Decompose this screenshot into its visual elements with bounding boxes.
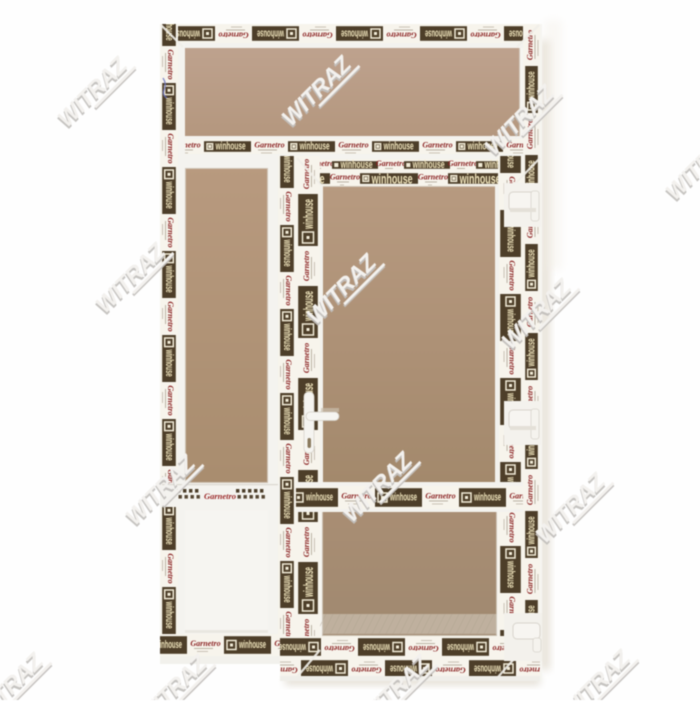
svg-text:Garnetro: Garnetro — [338, 141, 368, 150]
svg-text:Garnetro: Garnetro — [254, 141, 284, 150]
svg-text:winhouse: winhouse — [505, 560, 517, 588]
svg-text:winhouse: winhouse — [412, 159, 445, 171]
svg-text:Garnetro: Garnetro — [218, 31, 248, 40]
svg-text:winhouse: winhouse — [371, 171, 413, 187]
svg-text:winhouse: winhouse — [447, 641, 475, 653]
svg-text:Garnetro: Garnetro — [284, 191, 293, 221]
svg-text:winhouse: winhouse — [281, 575, 293, 603]
svg-text:Garnetro: Garnetro — [302, 527, 311, 557]
svg-text:Garnetro: Garnetro — [284, 527, 293, 557]
svg-text:winhouse: winhouse — [425, 28, 453, 40]
svg-text:Garnetro: Garnetro — [204, 491, 236, 501]
svg-text:Garnetro: Garnetro — [508, 260, 517, 290]
svg-text:winhouse: winhouse — [300, 567, 316, 598]
svg-text:Garnetro: Garnetro — [166, 217, 175, 247]
svg-text:Garnetro: Garnetro — [422, 141, 452, 150]
svg-text:winhouse: winhouse — [363, 641, 391, 653]
svg-text:winhouse: winhouse — [163, 517, 175, 545]
svg-text:Garnetro: Garnetro — [330, 173, 360, 182]
svg-text:Garnetro: Garnetro — [302, 343, 311, 373]
svg-text:Garnetro: Garnetro — [284, 359, 293, 389]
svg-text:Garnetro: Garnetro — [302, 31, 332, 40]
svg-text:winhouse: winhouse — [163, 349, 175, 377]
svg-text:winhouse: winhouse — [341, 28, 369, 40]
svg-text:Garnetro: Garnetro — [470, 31, 500, 40]
svg-text:winhouse: winhouse — [305, 492, 333, 504]
svg-text:Garnetro: Garnetro — [302, 159, 311, 189]
svg-text:Garnetro: Garnetro — [166, 385, 175, 415]
svg-text:Garnetro: Garnetro — [425, 492, 455, 501]
svg-text:Garnetro: Garnetro — [386, 31, 416, 40]
svg-text:Garnetro: Garnetro — [376, 159, 406, 168]
svg-text:winhouse: winhouse — [163, 97, 175, 125]
svg-text:winhouse: winhouse — [526, 249, 538, 278]
svg-text:Garnetro: Garnetro — [302, 251, 311, 281]
svg-text:winhouse: winhouse — [215, 141, 246, 153]
svg-text:Garnetro: Garnetro — [508, 512, 517, 542]
svg-text:winhouse: winhouse — [383, 141, 414, 153]
svg-text:winhouse: winhouse — [389, 492, 417, 504]
svg-text:winhouse: winhouse — [281, 323, 293, 351]
svg-text:winhouse: winhouse — [299, 141, 330, 153]
svg-text:winhouse: winhouse — [163, 181, 175, 209]
svg-text:winhouse: winhouse — [163, 433, 175, 461]
svg-text:winhouse: winhouse — [281, 491, 293, 519]
svg-text:Garnetro: Garnetro — [166, 133, 175, 163]
svg-text:winhouse: winhouse — [163, 265, 175, 293]
svg-text:Garnetro: Garnetro — [166, 49, 175, 79]
svg-text:winhouse: winhouse — [281, 239, 293, 267]
svg-text:winhouse: winhouse — [459, 171, 501, 187]
svg-text:winhouse: winhouse — [340, 159, 373, 171]
svg-text:winhouse: winhouse — [281, 407, 293, 435]
svg-text:winhouse: winhouse — [238, 639, 266, 651]
svg-text:winhouse: winhouse — [281, 155, 293, 183]
svg-text:winhouse: winhouse — [300, 199, 316, 230]
svg-text:winhouse: winhouse — [473, 492, 501, 504]
svg-text:winhouse: winhouse — [163, 601, 175, 629]
svg-text:winhouse: winhouse — [279, 641, 307, 653]
svg-text:Garnetro: Garnetro — [418, 173, 448, 182]
svg-text:Garnetro: Garnetro — [166, 553, 175, 583]
svg-text:winhouse: winhouse — [505, 224, 517, 252]
svg-text:Garnetro: Garnetro — [435, 666, 465, 675]
svg-text:Garnetro: Garnetro — [284, 275, 293, 305]
svg-text:Garnetro: Garnetro — [166, 301, 175, 331]
svg-text:winhouse: winhouse — [257, 28, 285, 40]
svg-text:Garnetro: Garnetro — [526, 564, 535, 594]
svg-text:Garnetro: Garnetro — [324, 644, 354, 653]
svg-text:Garnetro: Garnetro — [351, 666, 381, 675]
svg-text:Garnetro: Garnetro — [526, 475, 535, 505]
svg-text:Garnetro: Garnetro — [284, 443, 293, 473]
svg-text:Garnetro: Garnetro — [190, 639, 220, 648]
svg-text:winhouse: winhouse — [474, 663, 502, 675]
svg-text:winhouse: winhouse — [306, 663, 334, 675]
svg-text:Garnetro: Garnetro — [448, 159, 478, 168]
